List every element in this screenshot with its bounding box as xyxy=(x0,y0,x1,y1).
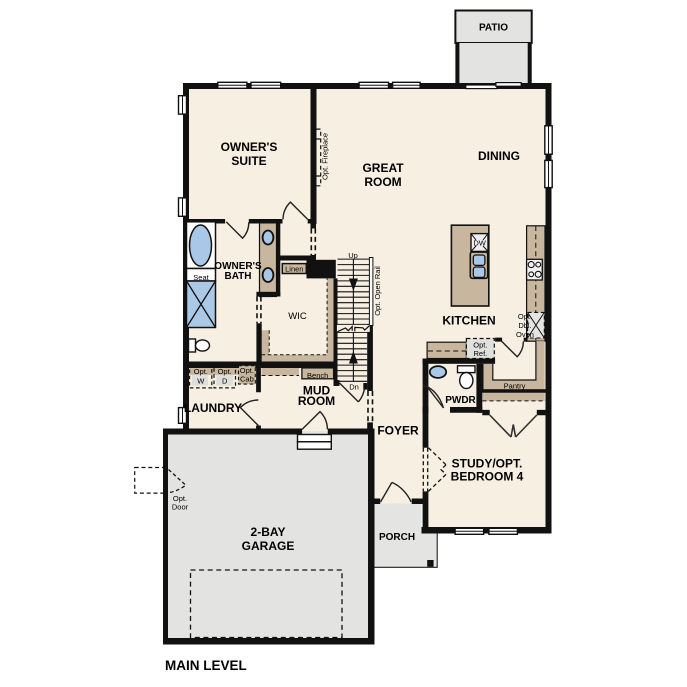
svg-text:D: D xyxy=(222,377,228,386)
svg-text:PORCH: PORCH xyxy=(379,532,415,543)
svg-text:Linen: Linen xyxy=(285,264,303,273)
svg-text:LAUNDRY: LAUNDRY xyxy=(184,401,242,415)
svg-text:BATH: BATH xyxy=(224,271,251,282)
svg-text:2-BAY: 2-BAY xyxy=(251,525,286,539)
svg-text:Opt. Fireplace: Opt. Fireplace xyxy=(321,133,330,180)
svg-text:Ref.: Ref. xyxy=(474,349,488,358)
svg-text:FOYER: FOYER xyxy=(377,424,419,438)
svg-text:MAIN LEVEL: MAIN LEVEL xyxy=(165,658,247,673)
svg-text:Dn: Dn xyxy=(349,383,359,392)
svg-text:ROOM: ROOM xyxy=(298,394,335,408)
svg-text:Cab: Cab xyxy=(240,375,254,384)
svg-text:Opt.: Opt. xyxy=(194,367,208,376)
svg-text:SUITE: SUITE xyxy=(231,154,266,168)
svg-text:Up: Up xyxy=(348,251,358,260)
svg-text:Dbl.: Dbl. xyxy=(518,321,531,330)
svg-text:OWNER'S: OWNER'S xyxy=(221,140,278,154)
svg-text:DW: DW xyxy=(473,239,486,248)
svg-text:Opt.: Opt. xyxy=(218,367,232,376)
svg-text:STUDY/OPT.: STUDY/OPT. xyxy=(452,457,523,471)
svg-text:Bench: Bench xyxy=(307,371,328,380)
svg-text:PATIO: PATIO xyxy=(479,23,508,34)
svg-text:ROOM: ROOM xyxy=(364,175,401,189)
svg-text:WIC: WIC xyxy=(288,311,307,322)
svg-text:Pantry: Pantry xyxy=(504,382,526,391)
svg-text:BEDROOM 4: BEDROOM 4 xyxy=(451,470,524,484)
svg-text:KITCHEN: KITCHEN xyxy=(442,314,495,328)
svg-text:PWDR: PWDR xyxy=(445,395,476,406)
svg-text:W: W xyxy=(197,377,205,386)
svg-text:Oven: Oven xyxy=(516,330,534,339)
svg-text:GREAT: GREAT xyxy=(362,161,404,175)
svg-text:Opt.: Opt. xyxy=(518,312,532,321)
svg-text:Opt. Open Rail: Opt. Open Rail xyxy=(373,266,382,316)
svg-text:DINING: DINING xyxy=(478,149,520,163)
svg-text:GARAGE: GARAGE xyxy=(242,539,295,553)
svg-text:Door: Door xyxy=(172,503,189,512)
